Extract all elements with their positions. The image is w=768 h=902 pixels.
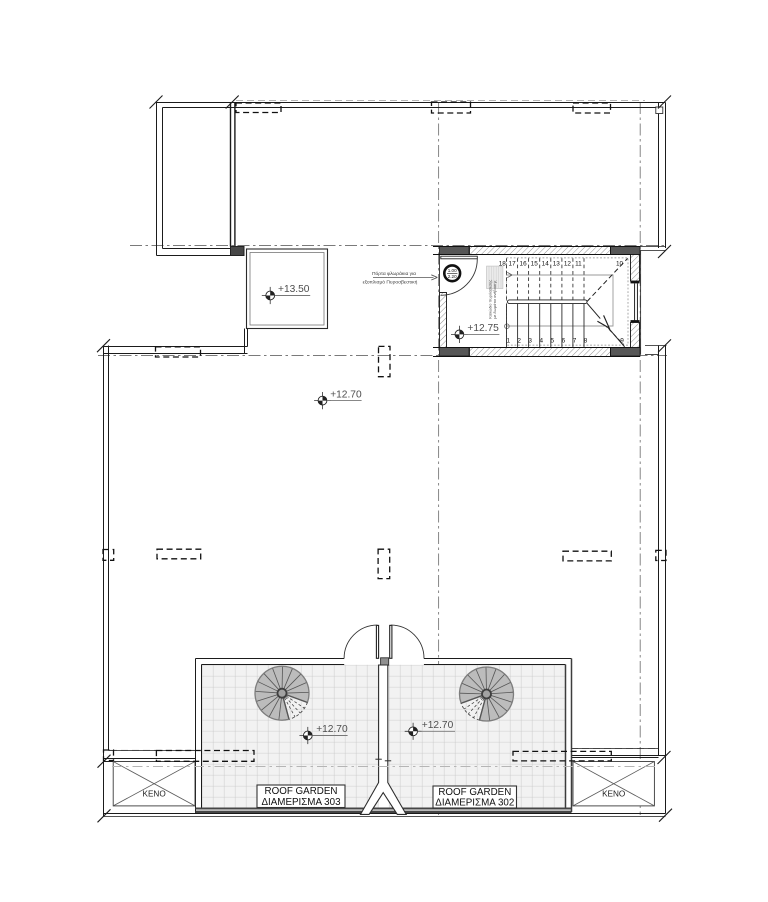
- svg-text:15: 15: [531, 260, 539, 267]
- svg-text:16: 16: [520, 260, 528, 267]
- svg-text:με δωμάτιο ανέβασης: με δωμάτιο ανέβασης: [492, 280, 497, 318]
- svg-text:12: 12: [564, 260, 572, 267]
- svg-text:7: 7: [573, 338, 577, 345]
- svg-text:+12.70: +12.70: [330, 389, 362, 400]
- svg-text:3: 3: [528, 338, 532, 345]
- svg-text:4: 4: [540, 338, 544, 345]
- svg-text:εξοπλισμό Πυροσβεστική: εξοπλισμό Πυροσβεστική: [363, 279, 418, 286]
- svg-text:+12.70: +12.70: [316, 724, 348, 735]
- svg-text:1: 1: [507, 338, 511, 345]
- svg-text:9: 9: [620, 338, 624, 345]
- svg-text:2.20: 2.20: [448, 274, 457, 279]
- svg-text:ROOF GARDEN: ROOF GARDEN: [438, 787, 511, 798]
- svg-text:ΔΙΑΜΕΡΙΣΜΑ 303: ΔΙΑΜΕΡΙΣΜΑ 303: [261, 797, 341, 808]
- svg-text:17: 17: [509, 260, 517, 267]
- svg-text:ΚΕΝΟ: ΚΕΝΟ: [142, 789, 165, 798]
- svg-text:ΚΕΝΟ: ΚΕΝΟ: [602, 789, 625, 798]
- svg-text:8: 8: [584, 338, 588, 345]
- svg-text:+12.70: +12.70: [422, 720, 454, 731]
- svg-text:ROOF GARDEN: ROOF GARDEN: [265, 786, 338, 797]
- svg-text:11: 11: [575, 260, 582, 267]
- svg-text:Πόρτα φλωράκια για: Πόρτα φλωράκια για: [372, 270, 416, 277]
- svg-text:1.00: 1.00: [448, 268, 457, 273]
- svg-text:13: 13: [553, 260, 561, 267]
- svg-text:+13.50: +13.50: [278, 284, 310, 295]
- svg-text:10: 10: [616, 260, 624, 267]
- svg-text:14: 14: [542, 260, 550, 267]
- svg-text:5: 5: [551, 338, 555, 345]
- svg-text:2: 2: [517, 338, 521, 345]
- svg-text:6: 6: [562, 338, 566, 345]
- svg-text:+12.75: +12.75: [467, 323, 499, 334]
- svg-text:ΔΙΑΜΕΡΙΣΜΑ 302: ΔΙΑΜΕΡΙΣΜΑ 302: [435, 798, 514, 809]
